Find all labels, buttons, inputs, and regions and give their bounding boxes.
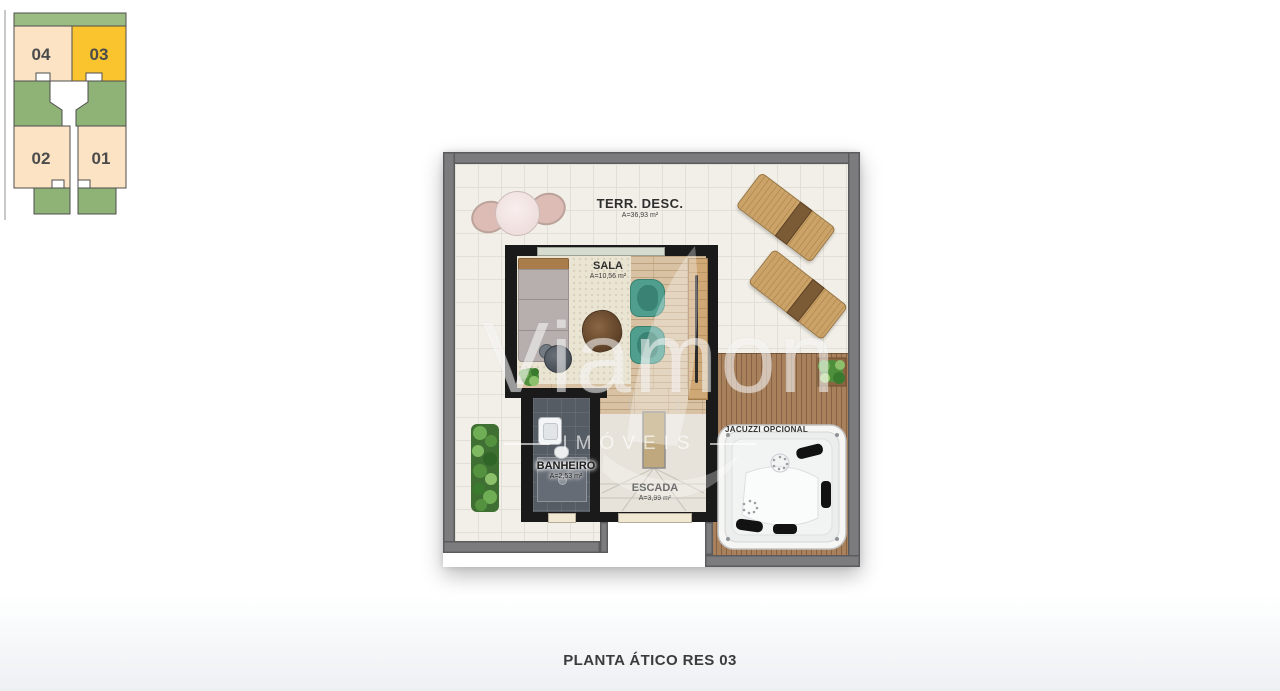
stairs-label: ESCADA A=3,99 m² [603, 482, 707, 502]
bathroom-door-sill [548, 513, 576, 523]
keyplan-locator: 04 03 02 01 [8, 6, 130, 220]
keyplan-unit-03-label: 03 [90, 45, 109, 64]
keyplan-core-left [14, 81, 62, 126]
outer-wall-left [443, 152, 455, 553]
outside-area [443, 553, 608, 567]
door-handle [695, 275, 698, 383]
side-table [544, 345, 572, 373]
terrace-area: A=36,93 m² [580, 212, 700, 219]
keyplan-unit-01-label: 01 [92, 149, 111, 168]
deck-plant [814, 352, 850, 390]
keyplan-notch [36, 73, 50, 81]
page-edge-line [4, 10, 6, 220]
sala-area: A=10,56 m² [558, 273, 658, 280]
keyplan-foot-left [34, 188, 70, 214]
outer-wall-bottom-left [443, 541, 600, 553]
floor-plan: JACUZZI OPCIONAL TERR. DESC. A=36,93 m² … [443, 152, 860, 567]
armchair-seat [637, 285, 658, 311]
sala-window [537, 247, 665, 256]
keyplan-unit-04-label: 04 [32, 45, 51, 64]
sala-wall-left [505, 245, 517, 398]
lounger-headrest [775, 201, 813, 244]
keyplan-foot-right [78, 188, 116, 214]
sink-basin [543, 423, 558, 440]
sofa-cushion-line [519, 330, 568, 331]
outside-area [608, 522, 705, 567]
toilet [554, 446, 569, 459]
bathroom-wall-left [521, 390, 533, 522]
stairs-door-sill [618, 513, 692, 523]
bathroom-label: BANHEIRO A=2,53 m² [506, 460, 626, 480]
round-table [495, 191, 540, 236]
outer-wall-top [443, 152, 860, 164]
terrace-label: TERR. DESC. A=36,93 m² [580, 196, 700, 219]
armchair-seat [637, 332, 658, 358]
outer-wall-step [600, 522, 608, 553]
potted-plant [517, 364, 543, 390]
deck-edge-bottom [705, 555, 860, 567]
deck-edge-left [705, 522, 713, 555]
keyplan-roof-band [14, 13, 126, 26]
keyplan-unit-02-label: 02 [32, 149, 51, 168]
sala-name: SALA [558, 260, 658, 272]
keyplan-core-right [76, 81, 126, 126]
jacuzzi-label: JACUZZI OPCIONAL [725, 425, 845, 434]
keyplan-notch [52, 180, 64, 188]
bathroom-name: BANHEIRO [506, 460, 626, 472]
armchair [630, 326, 665, 364]
vertical-garden [468, 421, 502, 515]
plan-title: PLANTA ÁTICO RES 03 [400, 652, 900, 669]
bathroom-wall-right [590, 390, 600, 522]
armchair [630, 279, 665, 317]
sala-label: SALA A=10,56 m² [558, 260, 658, 280]
lounger-headrest [786, 279, 824, 322]
stairs-area: A=3,99 m² [603, 495, 707, 502]
keyplan-notch [86, 73, 102, 81]
jacuzzi [716, 423, 849, 552]
stairs-name: ESCADA [603, 482, 707, 494]
bathroom-area: A=2,53 m² [506, 473, 626, 480]
keyplan-notch [78, 180, 90, 188]
sliding-door-panel [688, 258, 708, 400]
stair-stringer [643, 412, 665, 468]
bathroom-sink [538, 417, 562, 445]
terrace-name: TERR. DESC. [580, 196, 700, 211]
sofa-cushion-line [519, 299, 568, 300]
keyplan-drawing: 04 03 02 01 [8, 6, 130, 220]
